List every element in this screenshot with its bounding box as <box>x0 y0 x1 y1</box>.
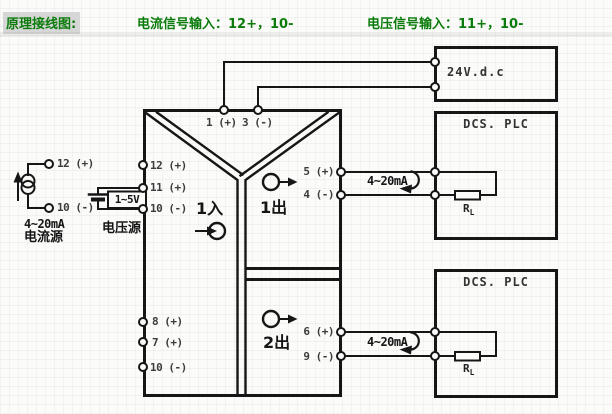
current-source-label: 电流源 <box>24 231 63 245</box>
dcs1-load-base: R <box>463 202 470 215</box>
current-source-terminal-top-label: 12 (+) <box>57 158 94 170</box>
input1-channel-icon <box>196 223 225 239</box>
dcs1-load-label: RL <box>463 202 474 217</box>
dcs1-load-circuit <box>437 172 496 200</box>
voltage-source-label: 电压源 <box>102 222 141 236</box>
left-terminal-12-label: 12 (+) <box>150 160 187 172</box>
output1-channel-label: 1出 <box>260 199 287 216</box>
dcs2-title: DCS. PLC <box>435 276 557 289</box>
dcs2-load-resistor <box>455 352 480 361</box>
wiring-diagram-page: 原理接线图: 电流信号输入：12+，10- 电压信号输入：11+，10- 12 … <box>0 0 612 414</box>
left-terminal-10b-label: 10 (-) <box>150 362 187 374</box>
power-terminal-1-label: 1 (+) <box>206 117 237 129</box>
dcs2-load-circuit <box>437 332 496 361</box>
header-divider <box>0 32 612 37</box>
current-signal-note: 电流信号输入：12+，10- <box>137 13 293 32</box>
power-wires <box>224 62 431 110</box>
right-terminal-5-label: 5 (+) <box>300 166 334 178</box>
page-title: 原理接线图: <box>3 12 80 34</box>
output-wires <box>341 172 431 356</box>
power-supply-label: 24V.d.c <box>447 66 505 79</box>
output1-channel-icon <box>263 174 298 190</box>
voltage-range-label: 1~5V <box>108 192 146 208</box>
dcs1-load-sub: L <box>470 208 475 217</box>
dcs2-load-sub: L <box>470 368 475 377</box>
dcs2-load-base: R <box>463 362 470 375</box>
left-terminal-7-label: 7 (+) <box>152 337 183 349</box>
right-terminal-4-label: 4 (-) <box>300 189 334 201</box>
left-terminal-8-label: 8 (+) <box>152 316 183 328</box>
left-terminal-10-label: 10 (-) <box>150 203 187 215</box>
current-source-terminal-bottom-label: 10 (-) <box>57 202 94 214</box>
dcs2-signal-label: 4~20mA <box>367 336 407 349</box>
power-terminal-3-label: 3 (-) <box>242 117 273 129</box>
dcs1-load-resistor <box>455 191 480 200</box>
dcs1-title: DCS. PLC <box>435 118 557 131</box>
dcs2-load-label: RL <box>463 362 474 377</box>
output2-channel-label: 2出 <box>263 334 290 351</box>
output2-channel-icon <box>263 311 298 327</box>
left-terminal-11-label: 11 (+) <box>150 182 187 194</box>
compartment-divider <box>248 269 339 280</box>
current-direction-up-arrow-icon <box>14 172 23 183</box>
input1-channel-label: 1入 <box>196 200 223 217</box>
right-terminal-9-label: 9 (-) <box>300 351 334 363</box>
right-terminal-6-label: 6 (+) <box>300 326 334 338</box>
voltage-signal-note: 电压信号输入：11+，10- <box>367 13 523 32</box>
terminal-dots <box>45 58 439 371</box>
current-source-symbol <box>14 164 47 208</box>
dcs1-signal-label: 4~20mA <box>367 175 407 188</box>
